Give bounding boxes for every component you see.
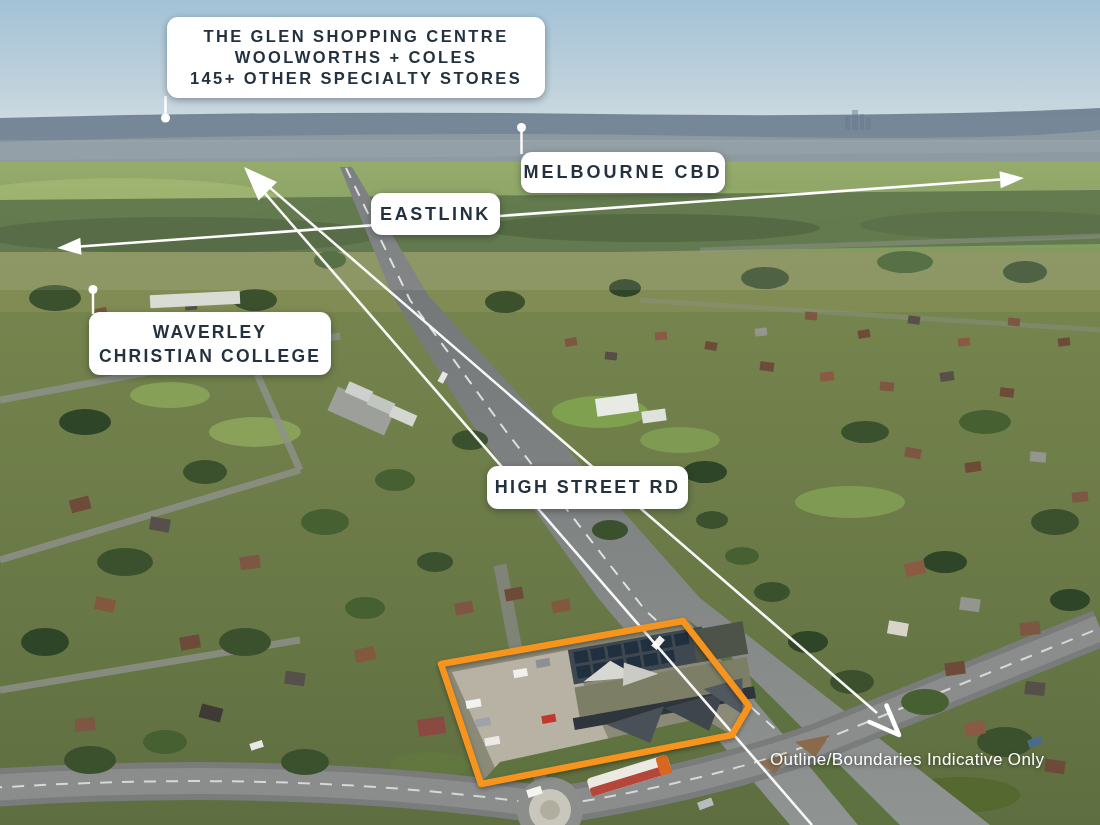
waverley-line-1: WAVERLEY — [153, 320, 268, 344]
glen-line-2: WOOLWORTHS + COLES — [235, 47, 478, 68]
aerial-photo-background — [0, 0, 1100, 825]
waverley-line-2: CHRISTIAN COLLEGE — [99, 344, 321, 368]
melbourne-cbd-text: MELBOURNE CBD — [524, 162, 723, 183]
glen-line-1: THE GLEN SHOPPING CENTRE — [203, 26, 508, 47]
label-melbourne-cbd: MELBOURNE CBD — [521, 152, 725, 193]
label-glen-shopping-centre: THE GLEN SHOPPING CENTRE WOOLWORTHS + CO… — [167, 17, 545, 98]
label-eastlink: EASTLINK — [371, 193, 500, 235]
high-street-text: HIGH STREET RD — [495, 477, 681, 498]
aerial-marketing-photo: THE GLEN SHOPPING CENTRE WOOLWORTHS + CO… — [0, 0, 1100, 825]
boundaries-disclaimer: Outline/Boundaries Indicative Only — [770, 750, 1044, 770]
eastlink-text: EASTLINK — [380, 204, 491, 225]
glen-line-3: 145+ OTHER SPECIALTY STORES — [190, 68, 522, 89]
label-high-street-rd: HIGH STREET RD — [487, 466, 688, 509]
label-waverley-christian-college: WAVERLEY CHRISTIAN COLLEGE — [89, 312, 331, 375]
